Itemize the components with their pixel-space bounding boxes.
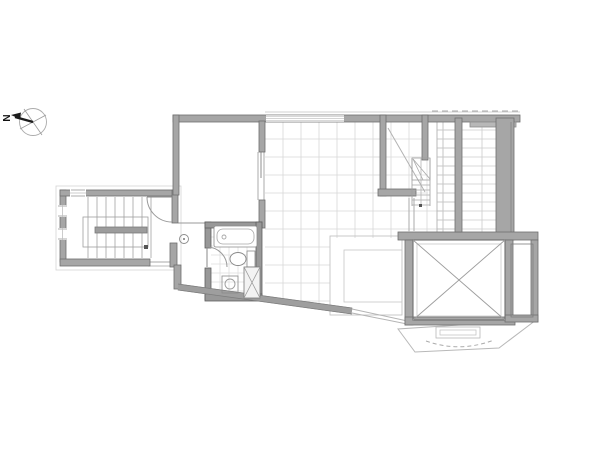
- tile-grid-main: [265, 121, 443, 319]
- wall-void-left: [405, 240, 413, 325]
- wall-void-right: [505, 240, 513, 317]
- wall-stair-right-lower: [170, 243, 177, 267]
- thin-diagonal-1: [352, 309, 412, 322]
- courtyard-inner-outline: [344, 250, 402, 302]
- wall-void-bottom: [405, 317, 515, 325]
- balcony-dashed-arc: [426, 340, 494, 347]
- winder-arrow-dot: [419, 204, 422, 207]
- toilet-tank: [247, 251, 255, 267]
- bay-shaft-outline: [511, 244, 533, 317]
- floor-plan-page: N: [0, 0, 600, 449]
- hall-drain-dot: [183, 238, 185, 240]
- stair-flight-band: [95, 227, 147, 233]
- courtyard-outer-outline: [330, 236, 402, 315]
- toilet-bowl: [230, 253, 246, 266]
- terrace-plank-grid: [462, 121, 496, 232]
- wall-stair-bottom: [60, 259, 150, 266]
- wall-hatch-rungs: [437, 130, 455, 229]
- sink-bowl: [225, 279, 235, 289]
- floor-plan-svg: [0, 0, 600, 449]
- balcony-door-outer: [436, 327, 480, 338]
- wall-room-left: [173, 115, 179, 195]
- wall-small-room-left: [380, 115, 386, 196]
- wall-terrace-left: [455, 118, 462, 232]
- wall-diagonal: [178, 287, 352, 311]
- wall-top-main: [173, 115, 520, 122]
- balcony-door-inner: [440, 330, 476, 335]
- wall-small-room-right: [422, 115, 428, 160]
- north-label: N: [2, 111, 14, 125]
- wall-diagonal-edge-2: [178, 290, 352, 314]
- wall-bay-right: [531, 240, 538, 322]
- wall-stair-left: [60, 190, 66, 262]
- small-room-diagonal: [388, 128, 425, 192]
- wall-small-room-bottom: [378, 189, 416, 196]
- wall-mid-band: [398, 232, 538, 240]
- wall-diagonal-edge-1: [178, 284, 352, 308]
- stair-arrow-dot: [144, 245, 148, 249]
- wall-divider-upper: [259, 121, 265, 152]
